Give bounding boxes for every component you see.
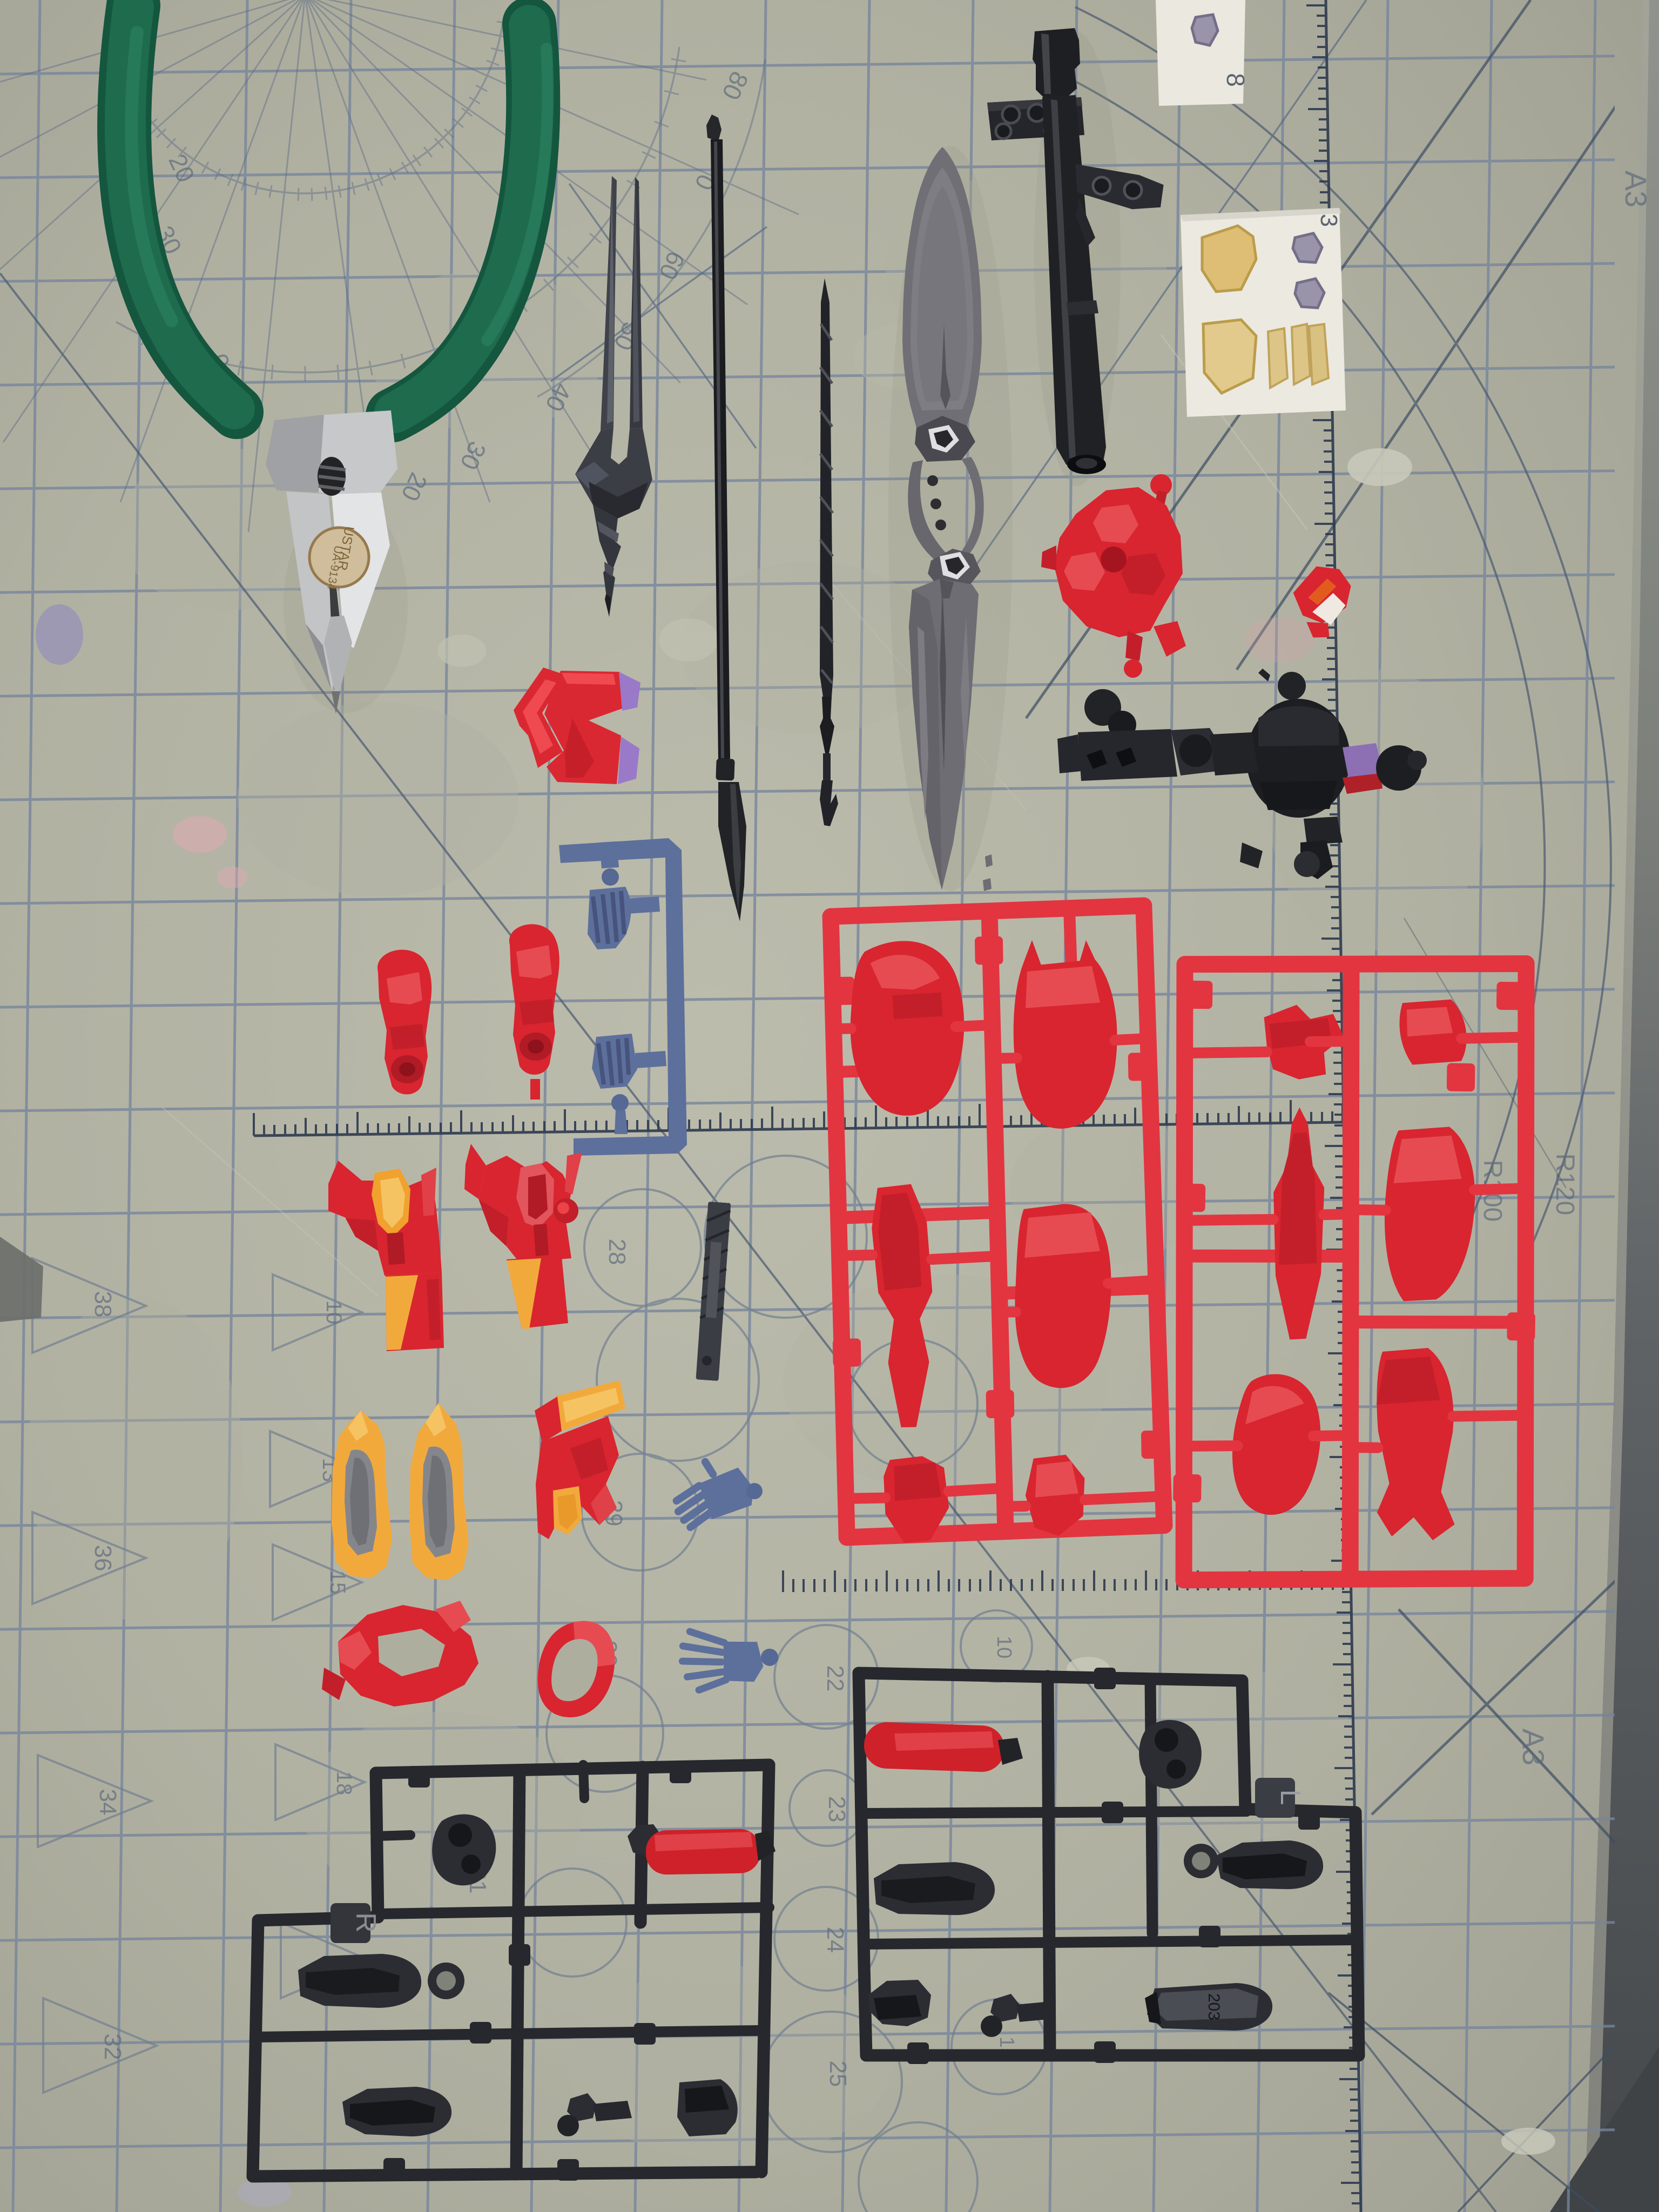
svg-text:23: 23 (824, 1796, 850, 1823)
svg-text:18: 18 (332, 1771, 356, 1796)
svg-text:28: 28 (604, 1239, 630, 1265)
svg-text:10: 10 (322, 1300, 346, 1325)
svg-text:R120: R120 (1550, 1154, 1579, 1216)
svg-text:25: 25 (825, 2061, 851, 2087)
svg-text:36: 36 (90, 1545, 116, 1572)
svg-text:34: 34 (95, 1789, 121, 1816)
svg-text:8: 8 (1222, 73, 1250, 87)
svg-text:10: 10 (993, 1636, 1015, 1658)
svg-text:R: R (350, 1912, 381, 1933)
svg-text:L: L (1274, 1790, 1306, 1805)
svg-text:203: 203 (1205, 1993, 1223, 2020)
svg-text:32: 32 (99, 2034, 126, 2060)
svg-text:24: 24 (822, 1927, 848, 1953)
svg-text:15: 15 (326, 1570, 349, 1595)
svg-text:38: 38 (90, 1291, 116, 1318)
svg-text:A3: A3 (1619, 171, 1653, 208)
svg-text:A3: A3 (1516, 1729, 1550, 1766)
svg-text:3: 3 (1316, 214, 1342, 227)
svg-text:22: 22 (822, 1665, 848, 1692)
